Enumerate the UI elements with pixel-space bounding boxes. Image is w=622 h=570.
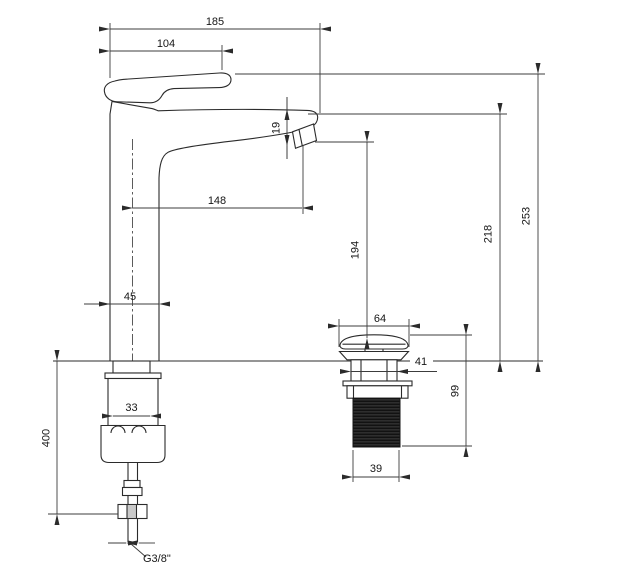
technical-drawing-canvas: 185 104 19 148 45 33 400 194 218 253 [0,0,622,570]
pipe-coupling [123,488,143,496]
dim-hose-length: 400 [41,361,58,514]
dim-outlet-to-drain: 194 [350,142,368,338]
drain-threaded-tail [353,398,400,447]
drain-ring [343,381,412,386]
dim-label-99: 99 [450,385,462,397]
drain-assembly [340,335,413,447]
dim-label-64: 64 [374,313,386,325]
dim-label-194: 194 [350,241,362,259]
under-counter-assembly [101,361,165,542]
drain-cap [340,335,408,349]
faucet-dimension-drawing: 185 104 19 148 45 33 400 194 218 253 [0,0,622,570]
dim-label-148: 148 [208,195,226,207]
dim-thread-size-callout: G3/8" [108,543,171,565]
drain-neck [351,360,397,381]
dim-drain-thread-diameter: 39 [353,463,399,477]
dim-label-218: 218 [483,225,495,243]
dim-label-185: 185 [206,16,224,28]
drain-locknut [347,386,408,398]
base-flange [105,373,161,379]
clamp-block [101,426,165,463]
dim-label-19: 19 [271,122,283,134]
dim-total-height: 253 [521,74,539,361]
dim-drain-cap-diameter: 64 [339,313,409,326]
dim-label-104: 104 [157,38,175,50]
dim-label-g38: G3/8" [143,553,171,565]
dim-label-33: 33 [125,402,137,414]
dim-label-41: 41 [415,356,427,368]
dim-label-39: 39 [370,463,382,475]
dim-total-width: 185 [110,16,320,29]
mounting-shank [113,361,150,373]
pipe-coupling-top [124,481,140,488]
dim-spout-top-height: 218 [483,114,501,361]
supply-pipe [118,463,147,543]
drain-flange [340,352,409,360]
dim-drain-body-height: 99 [450,335,467,446]
dim-handle-width: 104 [110,38,222,51]
body-spout-outline [110,102,318,362]
dim-label-45: 45 [124,291,136,303]
dim-label-253: 253 [521,207,533,225]
faucet-body [104,73,317,372]
dim-label-400: 400 [41,429,53,447]
handle-lever [104,73,231,103]
